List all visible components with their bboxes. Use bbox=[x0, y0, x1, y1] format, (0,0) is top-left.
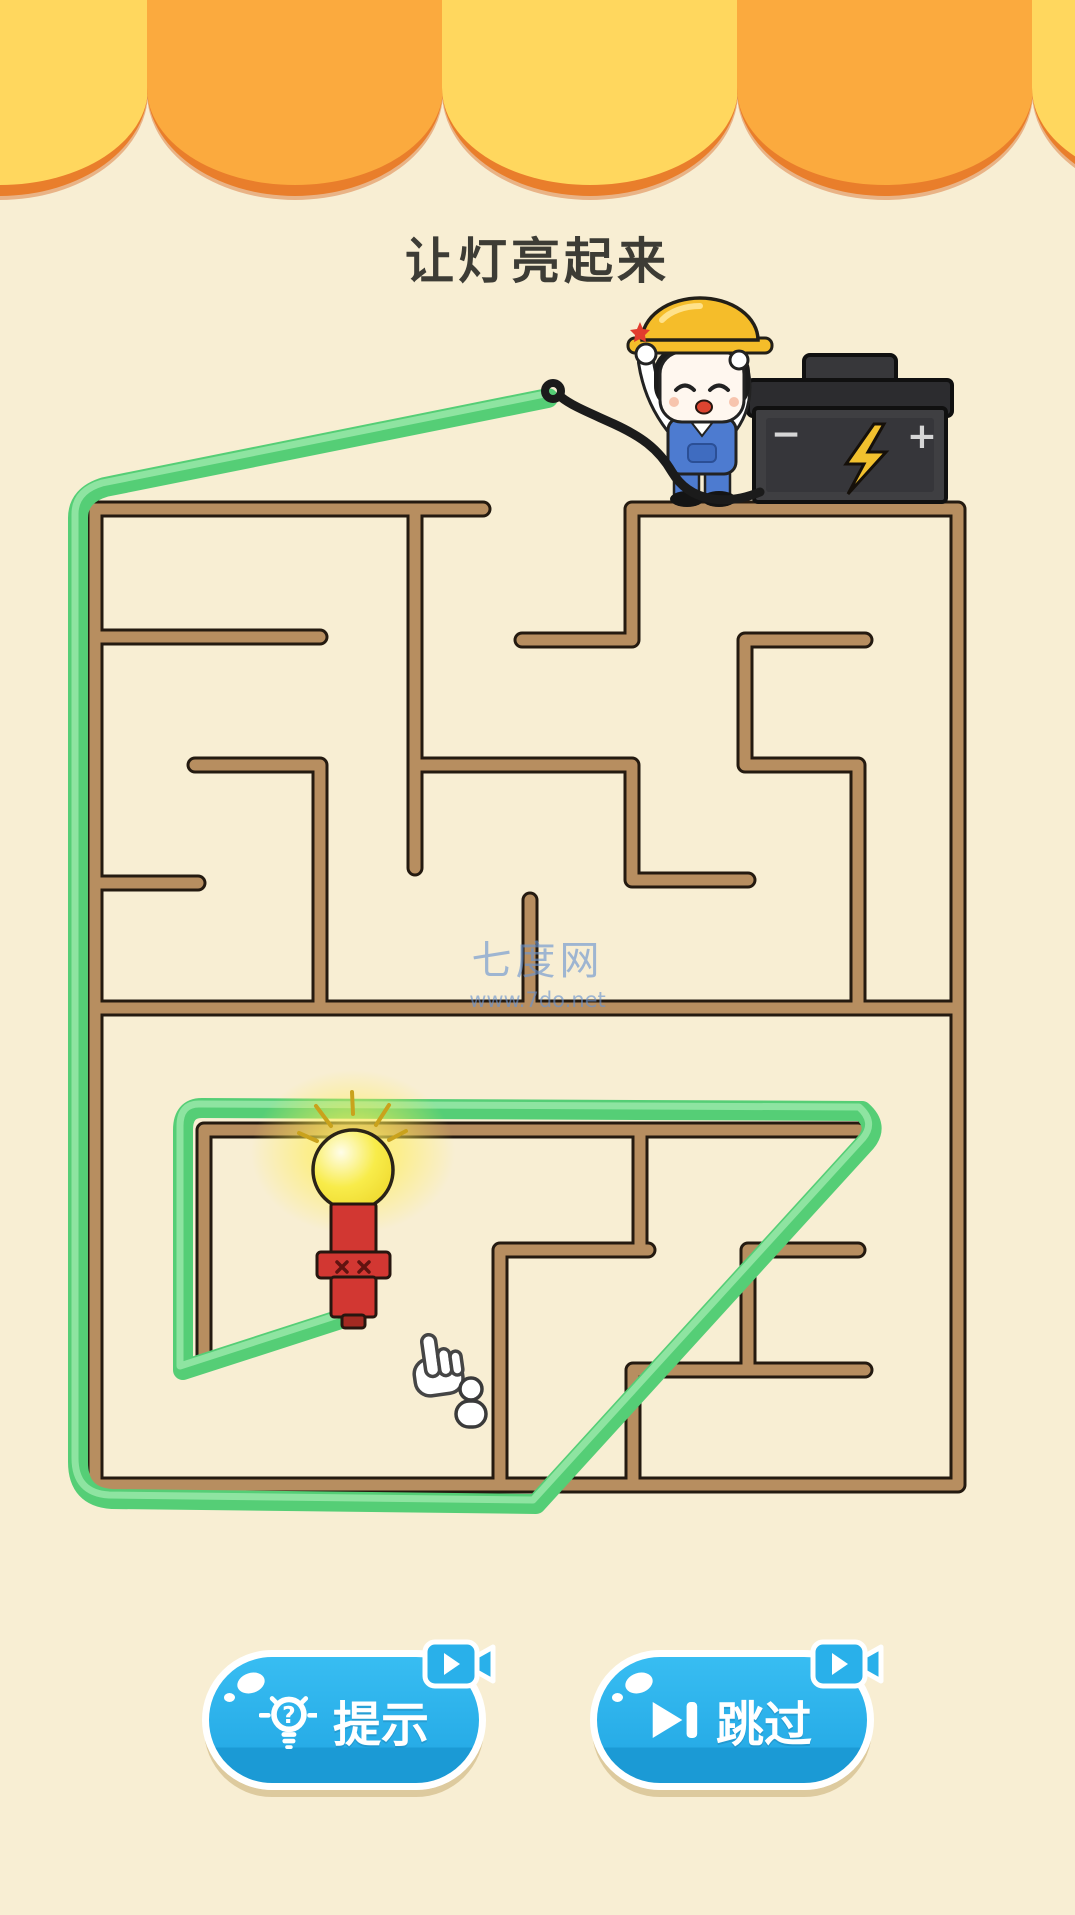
worker-character bbox=[628, 298, 772, 507]
battery: − + bbox=[748, 355, 952, 502]
hair bbox=[654, 348, 750, 410]
watermark-site-url: www.7do.net bbox=[469, 988, 606, 1012]
light-bulb bbox=[313, 1130, 393, 1328]
video-camera-icon bbox=[809, 1634, 889, 1694]
gloss-highlight bbox=[623, 1669, 656, 1697]
hand bbox=[636, 344, 656, 364]
wire-curl bbox=[545, 383, 561, 399]
awning-banner bbox=[0, 0, 1075, 195]
closed-eye bbox=[710, 386, 728, 391]
bulb-rays-icon bbox=[299, 1092, 406, 1141]
hand bbox=[730, 351, 748, 369]
helmet-brim bbox=[628, 338, 772, 353]
maze-wall bbox=[500, 1250, 648, 1485]
maze-wall bbox=[95, 509, 958, 1485]
hard-hat-icon bbox=[642, 298, 758, 340]
maze-wall bbox=[633, 1370, 865, 1485]
battery-lid bbox=[748, 380, 952, 416]
maze-wall bbox=[204, 1130, 858, 1360]
awning-scallop bbox=[1032, 0, 1075, 196]
maze-wall bbox=[633, 1370, 865, 1485]
watermark: 七度网 www.7do.net bbox=[469, 928, 606, 1012]
drawn-path[interactable] bbox=[78, 398, 872, 1504]
maze-walls bbox=[95, 509, 958, 1485]
maze-wall bbox=[204, 1130, 858, 1360]
maze-wall bbox=[195, 765, 320, 1008]
watermark-site-name: 七度网 bbox=[469, 928, 606, 986]
drawn-path-highlight bbox=[75, 394, 869, 1500]
bulb-socket-marks bbox=[337, 1262, 369, 1272]
maze-wall bbox=[748, 1250, 858, 1370]
closed-eye bbox=[676, 386, 694, 391]
battery-minus-terminal: − bbox=[771, 414, 801, 455]
face bbox=[660, 352, 744, 422]
maze-wall bbox=[415, 765, 748, 880]
battery-plus-terminal: + bbox=[907, 416, 937, 457]
skip-next-icon bbox=[652, 1702, 700, 1738]
gloss-highlight bbox=[224, 1693, 235, 1702]
video-camera-icon bbox=[421, 1634, 501, 1694]
awning-scallop bbox=[0, 0, 148, 196]
maze-wall bbox=[748, 1250, 858, 1370]
svg-text:?: ? bbox=[282, 1701, 296, 1729]
hint-button[interactable]: ? 提示 bbox=[202, 1650, 486, 1790]
skip-button[interactable]: 跳过 bbox=[590, 1650, 874, 1790]
person-icon bbox=[456, 1378, 486, 1427]
lightbulb-question-icon: ? bbox=[259, 1689, 317, 1751]
lightning-bolt-icon bbox=[846, 424, 886, 494]
awning-scallop bbox=[737, 0, 1033, 196]
awning-scallop bbox=[442, 0, 738, 196]
maze-wall bbox=[500, 1250, 648, 1485]
game-screen: 让灯亮起来 bbox=[0, 0, 1075, 1915]
maze-wall bbox=[95, 509, 958, 1485]
skip-button-label: 跳过 bbox=[716, 1685, 812, 1755]
maze-wall bbox=[745, 640, 865, 1008]
battery-handle bbox=[804, 355, 896, 387]
awning-scallop bbox=[147, 0, 443, 196]
maze-wall bbox=[195, 765, 320, 1008]
hand-cursor bbox=[409, 1331, 466, 1398]
spark-icon bbox=[630, 322, 650, 342]
power-wire bbox=[545, 383, 760, 500]
hint-button-label: 提示 bbox=[333, 1685, 429, 1755]
gloss-highlight bbox=[612, 1693, 623, 1702]
mouth bbox=[696, 401, 712, 414]
level-title: 让灯亮起来 bbox=[0, 222, 1075, 293]
maze-wall bbox=[745, 640, 865, 1008]
bulb-glow bbox=[251, 1070, 455, 1234]
battery-body bbox=[754, 408, 946, 502]
maze-wall bbox=[415, 765, 748, 880]
